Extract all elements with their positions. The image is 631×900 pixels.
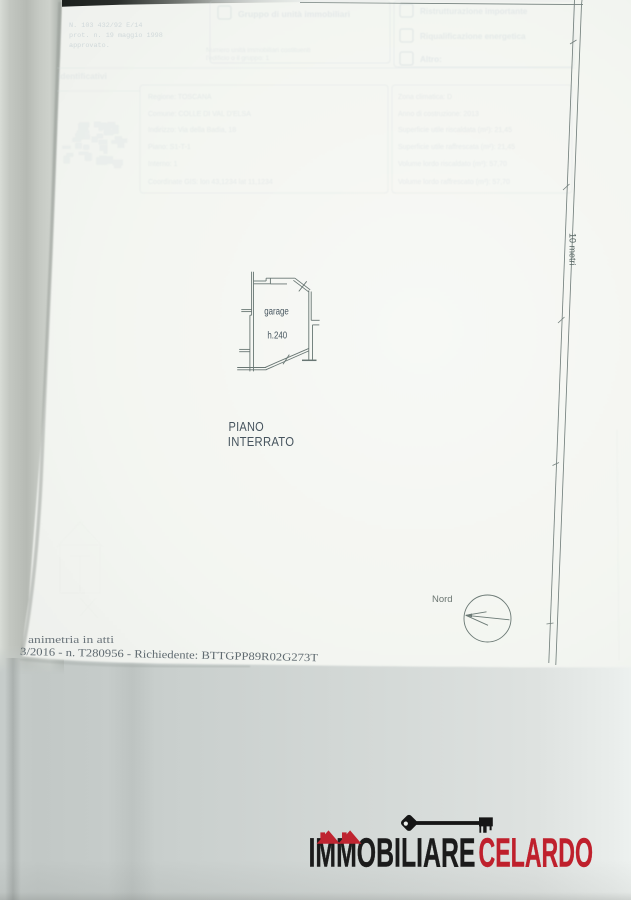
svg-text:Volume lordo raffrescato (m³):: Volume lordo raffrescato (m³): 57,70: [398, 179, 510, 186]
svg-text:garage: garage: [264, 307, 289, 318]
svg-text:prot. n. 19 maggio 1998: prot. n. 19 maggio 1998: [69, 32, 163, 40]
svg-text:Anno di costruzione: 2013: Anno di costruzione: 2013: [398, 111, 479, 118]
svg-text:CELARDO: CELARDO: [479, 830, 594, 876]
svg-text:10 metri: 10 metri: [568, 233, 578, 266]
svg-text:Altro:: Altro:: [420, 55, 442, 64]
svg-text:Indirizzo: Via della Badia, 18: Indirizzo: Via della Badia, 18: [148, 127, 236, 134]
svg-text:PIANO: PIANO: [229, 419, 265, 434]
svg-text:Zona climatica: D: Zona climatica: D: [398, 94, 452, 101]
svg-text:h.240: h.240: [267, 331, 287, 342]
svg-text:Comune: COLLE DI VAL D'ELSA: Comune: COLLE DI VAL D'ELSA: [148, 111, 251, 118]
svg-text:animetria in atti: animetria in atti: [28, 634, 114, 646]
svg-text:ldentificativi: ldentificativi: [58, 71, 107, 81]
svg-text:Gruppo di unità immobiliari: Gruppo di unità immobiliari: [238, 9, 350, 19]
svg-text:Riqualificazione energetica: Riqualificazione energetica: [420, 32, 526, 41]
svg-text:Coordinate GIS: lon 43,1234 l: Coordinate GIS: lon 43,1234 lat 11,1234: [148, 179, 273, 186]
svg-text:Superficie utile riscaldata (m: Superficie utile riscaldata (m²): 21,45: [398, 127, 512, 134]
svg-text:Interno: 1: Interno: 1: [148, 161, 178, 168]
svg-text:approvato.: approvato.: [69, 42, 110, 50]
svg-text:Volume lordo riscaldato (m³):: Volume lordo riscaldato (m³): 57,70: [398, 161, 507, 168]
svg-text:l'edificio o il gruppo: 1: l'edificio o il gruppo: 1: [206, 55, 270, 62]
svg-text:N. 103 432/92 E/14: N. 103 432/92 E/14: [69, 22, 142, 30]
svg-text:Regione: TOSCANA: Regione: TOSCANA: [148, 94, 212, 101]
svg-text:INTERRATO: INTERRATO: [228, 434, 294, 449]
svg-text:Nord: Nord: [432, 594, 453, 605]
svg-text:Piano: S1-T-1: Piano: S1-T-1: [148, 144, 191, 151]
svg-text:Ristrutturazione importante: Ristrutturazione importante: [420, 7, 528, 16]
svg-text:Numero unità immobiliari costi: Numero unità immobiliari costituenti: [206, 47, 311, 54]
svg-text:Superficie utile raffrescata (: Superficie utile raffrescata (m²): 21,45: [398, 144, 515, 151]
